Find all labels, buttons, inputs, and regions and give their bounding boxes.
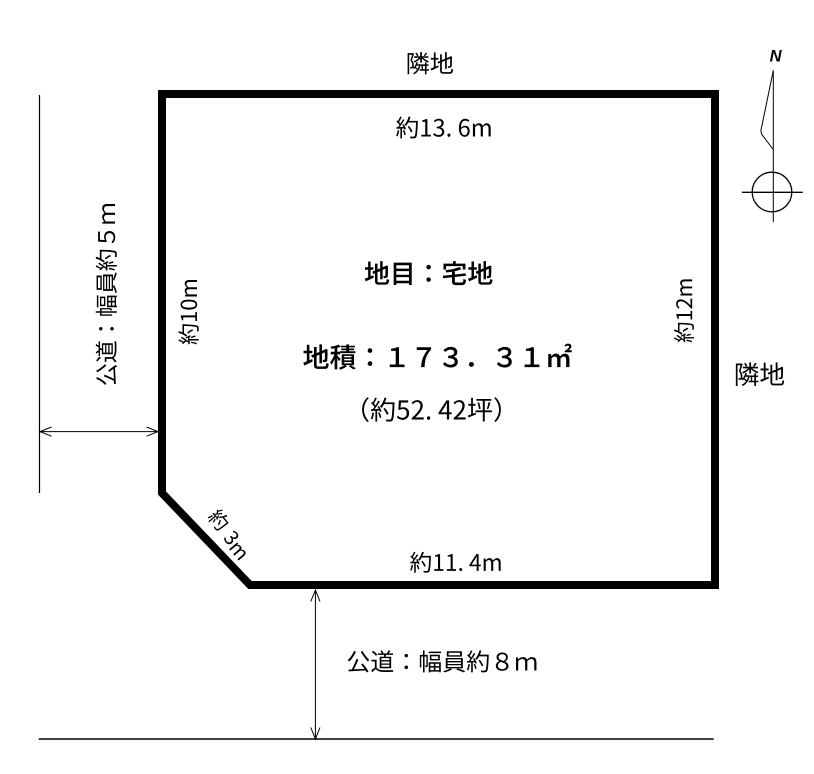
svg-text:N: N — [770, 48, 783, 66]
